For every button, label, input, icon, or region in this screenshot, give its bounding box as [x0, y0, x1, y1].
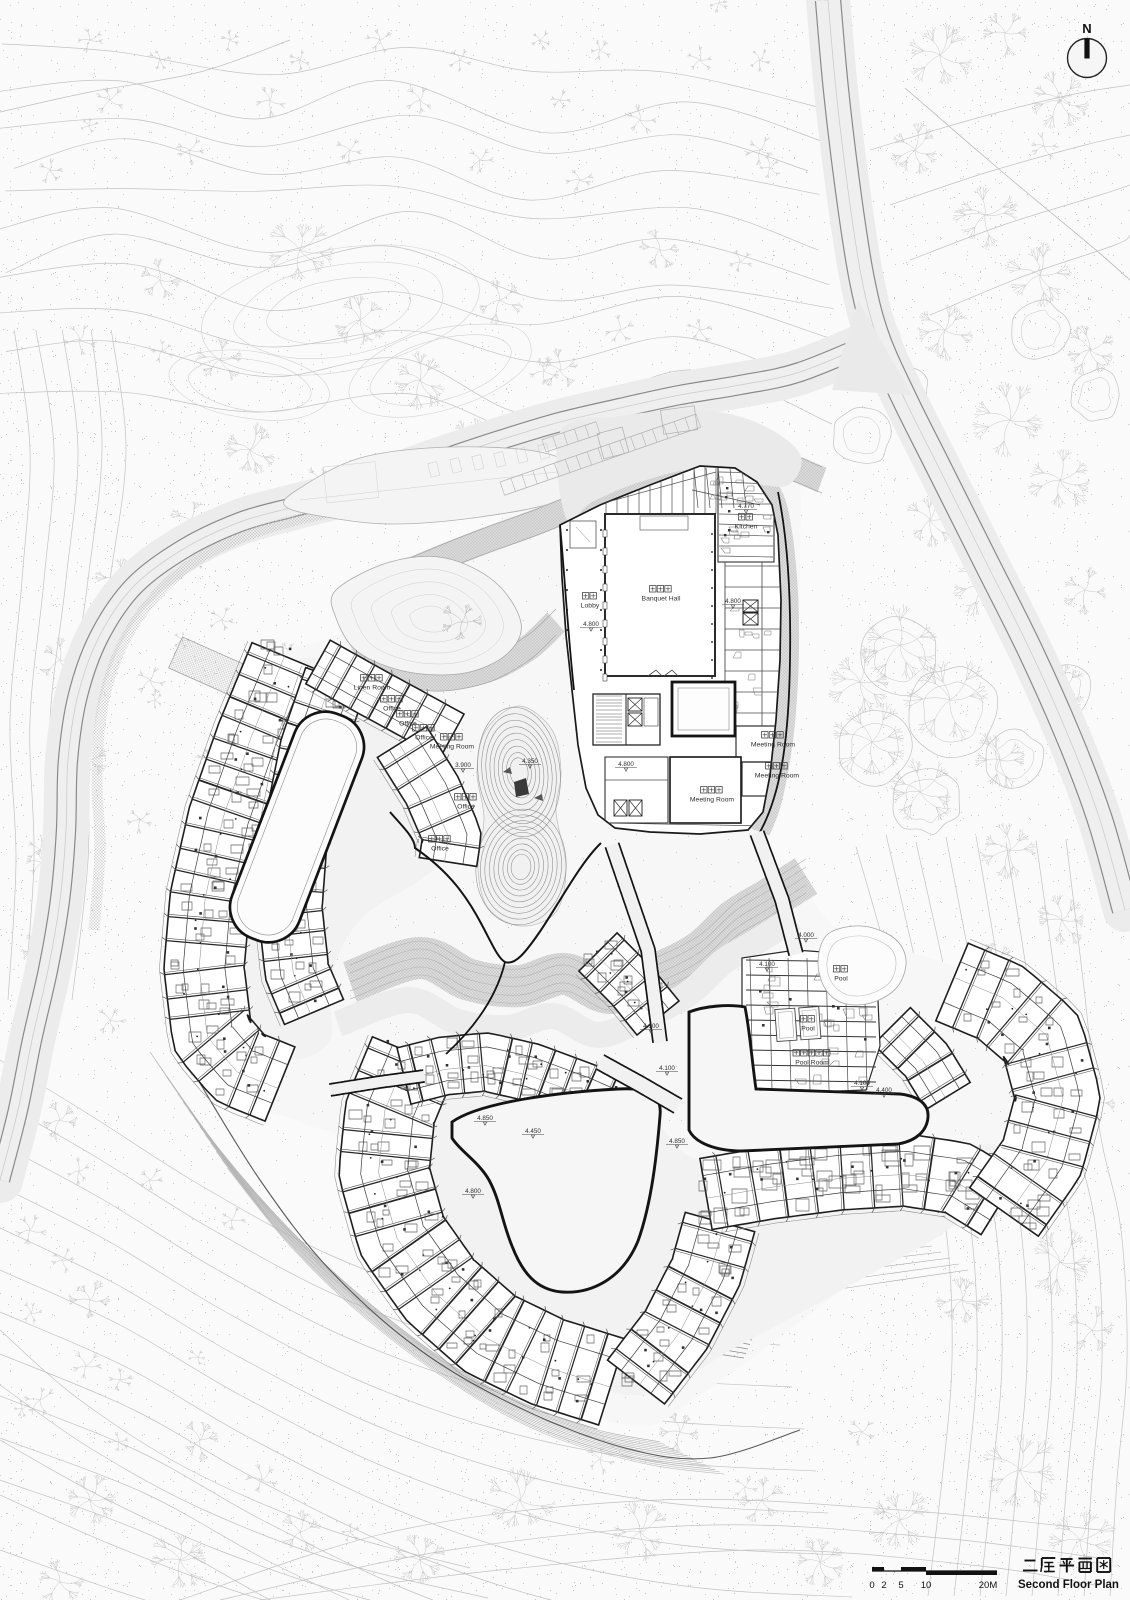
svg-text:4.100: 4.100 [854, 1080, 870, 1087]
svg-text:4.800: 4.800 [725, 598, 741, 605]
svg-text:5: 5 [898, 1580, 903, 1591]
svg-text:4.850: 4.850 [669, 1138, 685, 1145]
svg-text:Lobby: Lobby [581, 603, 600, 610]
svg-text:Office: Office [457, 804, 475, 811]
svg-text:Pool: Pool [834, 976, 848, 983]
svg-text:Office: Office [431, 846, 449, 853]
svg-text:4.100: 4.100 [759, 961, 775, 968]
svg-text:N: N [1082, 21, 1091, 36]
svg-text:4.770: 4.770 [738, 503, 754, 510]
svg-text:0: 0 [869, 1580, 874, 1591]
svg-text:Pool: Pool [801, 1026, 815, 1033]
svg-text:4.450: 4.450 [525, 1128, 541, 1135]
svg-text:4.000: 4.000 [798, 932, 814, 939]
svg-text:Office: Office [415, 735, 433, 742]
svg-text:Second Floor Plan: Second Floor Plan [1018, 1579, 1119, 1591]
svg-text:Kitchen: Kitchen [735, 524, 758, 531]
svg-text:4.100: 4.100 [659, 1065, 675, 1072]
svg-text:Linen Room: Linen Room [354, 685, 391, 692]
svg-text:3.900: 3.900 [455, 762, 471, 769]
svg-text:4.100: 4.100 [643, 1023, 659, 1030]
svg-text:4.800: 4.800 [583, 621, 599, 628]
svg-text:Banquet Hall: Banquet Hall [642, 596, 681, 603]
svg-text:Office: Office [383, 706, 401, 713]
svg-text:Meeting Room: Meeting Room [690, 797, 735, 804]
svg-text:Pool Room: Pool Room [795, 1060, 829, 1067]
svg-text:Meeting Room: Meeting Room [751, 742, 796, 749]
svg-text:Meeting Room: Meeting Room [755, 773, 800, 780]
svg-text:4.350: 4.350 [522, 758, 538, 765]
svg-text:Office: Office [399, 721, 417, 728]
svg-text:4.850: 4.850 [477, 1115, 493, 1122]
svg-text:2: 2 [881, 1580, 886, 1591]
svg-text:10: 10 [921, 1580, 932, 1591]
svg-text:4.800: 4.800 [465, 1188, 481, 1195]
svg-text:20M: 20M [979, 1580, 998, 1591]
svg-text:4.400: 4.400 [876, 1087, 892, 1094]
svg-text:Meeting Room: Meeting Room [430, 744, 475, 751]
svg-text:4.800: 4.800 [618, 761, 634, 768]
